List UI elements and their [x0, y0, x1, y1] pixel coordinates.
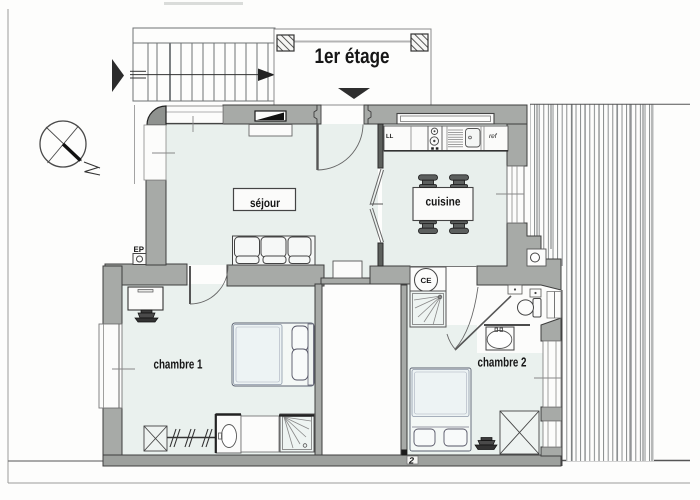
svg-text:chambre 1: chambre 1 [154, 357, 203, 372]
svg-text:chambre 2: chambre 2 [478, 355, 527, 370]
svg-text:séjour: séjour [250, 196, 280, 210]
svg-text:cuisine: cuisine [426, 195, 461, 209]
svg-text:CE: CE [421, 276, 432, 285]
svg-text:EP: EP [134, 245, 145, 254]
svg-text:ref: ref [489, 133, 498, 140]
svg-text:LL: LL [386, 133, 394, 140]
svg-text:2: 2 [408, 456, 414, 466]
svg-text:1er étage: 1er étage [315, 45, 390, 68]
